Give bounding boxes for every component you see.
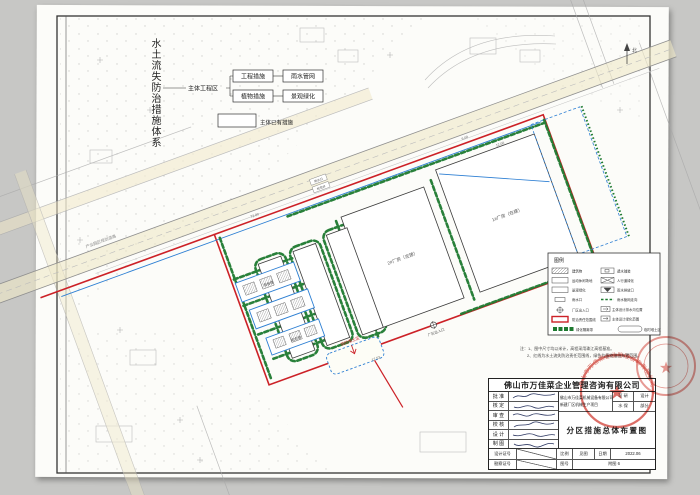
- measure-box-label: 工程措施: [241, 72, 265, 80]
- project-line: 新建厂区机械生产项目: [560, 402, 612, 408]
- approval-rows: 批 准 核 定 审 查 校 核 设 计 制 图: [489, 392, 559, 448]
- system-title-vertical: 水土流失防治措施体系: [146, 38, 162, 156]
- legend-label: 雨水管网走向: [617, 297, 638, 302]
- signature-scribble: [509, 402, 558, 411]
- notes: 注：1、图中尺寸均以米计，高程采用珠江高程基准。 2、红线为水土流失防治责任范围…: [520, 345, 641, 358]
- legend-label: 景观绿化: [572, 288, 586, 293]
- fig-value: 附图 6: [573, 460, 655, 470]
- title-block: 佛山市万佳菜企业管理咨询有限公司 批 准 核 定 审 查 校 核 设 计 制 图: [488, 378, 656, 470]
- scale-label: 比例: [557, 449, 573, 459]
- signature-scribble: [509, 440, 558, 449]
- signature-scribble: [509, 411, 558, 420]
- legend-box: 图例 建筑物 运动休闲场地: [548, 253, 662, 335]
- legend-label: 建筑物: [572, 269, 583, 274]
- legend-label: 运动休闲场地: [572, 278, 593, 283]
- cert-value-blank: [517, 460, 557, 470]
- approval-label: 批 准: [489, 392, 509, 401]
- legend-label: 主体设计排水沟位置: [612, 307, 643, 312]
- title-block-footer: 设计证号 比例 见图 日期 2022.06 勘察证号 图号 附图 6: [489, 449, 655, 469]
- scale-value: 见图: [573, 449, 595, 459]
- north-label: 北: [632, 47, 637, 54]
- date-label: 日期: [595, 449, 611, 459]
- cert-value-blank: [517, 449, 557, 459]
- zone-label: 主体工程区: [188, 85, 218, 93]
- legend-label: 雨水口: [572, 297, 582, 302]
- legend-label: 透水铺装: [617, 269, 631, 274]
- approval-label: 核 定: [489, 402, 509, 411]
- legend-label: 雨水排放口: [617, 288, 634, 293]
- stage-value: 设计: [634, 392, 655, 402]
- entrance-label: 厂区出入口: [427, 327, 446, 338]
- cert-label: 勘察证号: [489, 460, 517, 470]
- legend-label: 人行道绿化: [617, 278, 635, 283]
- legend-label: 临时堆土区: [644, 327, 662, 332]
- scanned-drawing-canvas: 产业园区规划道路 72.00 6.00 12.00: [0, 0, 700, 495]
- legend-label: 厂区出入口: [572, 308, 589, 313]
- stage-value: 部分: [634, 402, 655, 412]
- cert-label: 设计证号: [489, 449, 517, 459]
- stage-cells: 可 研 设计 水 保 部分: [613, 392, 655, 411]
- project-name: 佛山市万佳菜机械设备有限公司 新建厂区机械生产项目: [559, 392, 613, 411]
- target-box-label: 雨水管网: [291, 72, 315, 80]
- approval-label: 制 图: [489, 440, 509, 449]
- dim-text: 6.00: [461, 135, 469, 141]
- drawing-title: 分区措施总体布置图: [559, 412, 655, 448]
- approval-label: 设 计: [489, 430, 509, 439]
- company-name: 佛山市万佳菜企业管理咨询有限公司: [489, 379, 655, 392]
- target-box-label: 景观绿化: [291, 92, 315, 100]
- fig-label: 图号: [557, 460, 573, 470]
- signature-scribble: [509, 430, 558, 439]
- legend-label: 主体设计绿化范围: [612, 317, 640, 322]
- legend-label: 防治责任范围线: [572, 317, 596, 322]
- measure-box-label: 植物措施: [241, 92, 265, 100]
- future-zone-green-edge: [582, 106, 630, 238]
- approval-label: 校 核: [489, 421, 509, 430]
- signature-scribble: [509, 421, 558, 430]
- note-line: 注：1、图中尺寸均以米计，高程采用珠江高程基准。: [520, 345, 614, 351]
- date-value: 2022.06: [611, 449, 655, 459]
- approval-label: 审 查: [489, 411, 509, 420]
- existing-measures-label: 主体已有措施: [260, 119, 294, 127]
- signature-scribble: [509, 392, 558, 401]
- stage-label: 可 研: [613, 392, 634, 402]
- legend-label: 绿化隔离带: [576, 327, 594, 332]
- stage-label: 水 保: [613, 402, 634, 412]
- note-line: 2、红线为水土流失防治责任范围线，绿色为植物措施布置范围。: [527, 352, 641, 358]
- legend-title: 图例: [554, 257, 564, 264]
